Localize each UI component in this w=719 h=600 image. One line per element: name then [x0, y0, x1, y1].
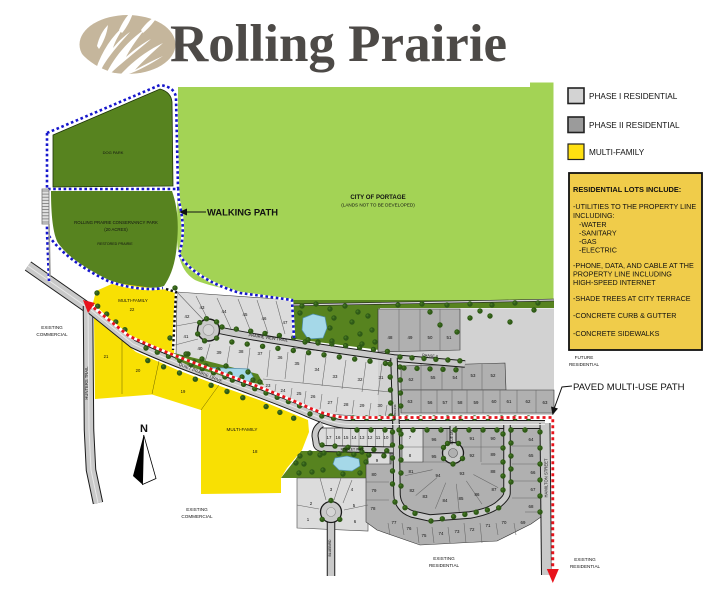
- svg-text:25: 25: [297, 391, 302, 396]
- svg-text:32: 32: [358, 377, 363, 382]
- svg-text:67: 67: [531, 487, 536, 492]
- svg-text:COMMERCIAL: COMMERCIAL: [36, 332, 68, 337]
- svg-text:78: 78: [371, 506, 376, 511]
- svg-text:HAMILTON STREET: HAMILTON STREET: [544, 458, 549, 497]
- svg-text:23: 23: [266, 383, 271, 388]
- svg-text:21: 21: [104, 354, 109, 359]
- svg-text:63: 63: [543, 400, 548, 405]
- svg-text:61: 61: [507, 399, 512, 404]
- svg-text:EXISTING: EXISTING: [186, 507, 208, 512]
- svg-text:49: 49: [408, 335, 413, 340]
- svg-text:43: 43: [200, 305, 205, 310]
- svg-text:41: 41: [184, 334, 189, 339]
- svg-text:66: 66: [531, 470, 536, 475]
- svg-text:62: 62: [526, 399, 531, 404]
- svg-text:ROLLING PRAIRIE CONSERVANCY PA: ROLLING PRAIRIE CONSERVANCY PARK: [74, 220, 158, 225]
- svg-text:88: 88: [491, 469, 496, 474]
- svg-text:59: 59: [474, 400, 479, 405]
- svg-text:65: 65: [529, 453, 534, 458]
- svg-text:EXISTING: EXISTING: [41, 325, 63, 330]
- svg-text:92: 92: [470, 453, 475, 458]
- svg-text:PHASE I RESIDENTIAL: PHASE I RESIDENTIAL: [589, 92, 678, 101]
- svg-text:-CONCRETE SIDEWALKS: -CONCRETE SIDEWALKS: [573, 329, 660, 338]
- svg-text:-CONCRETE CURB & GUTTER: -CONCRETE CURB & GUTTER: [573, 311, 676, 320]
- svg-text:79: 79: [372, 488, 377, 493]
- svg-text:-ELECTRIC: -ELECTRIC: [573, 246, 617, 255]
- svg-text:15: 15: [344, 435, 349, 440]
- svg-text:84: 84: [443, 498, 448, 503]
- svg-text:RESTORED PRAIRIE: RESTORED PRAIRIE: [97, 242, 133, 246]
- svg-text:HIGH-SPEED INTERNET: HIGH-SPEED INTERNET: [573, 278, 656, 287]
- svg-text:51: 51: [447, 335, 452, 340]
- svg-text:(20 ACRES): (20 ACRES): [104, 227, 128, 232]
- svg-text:INCLUDING:: INCLUDING:: [573, 211, 615, 220]
- svg-text:90: 90: [491, 436, 496, 441]
- svg-text:56: 56: [428, 400, 433, 405]
- svg-text:MULTI-FAMILY: MULTI-FAMILY: [227, 427, 258, 432]
- svg-text:WALKING PATH: WALKING PATH: [207, 207, 278, 218]
- svg-text:68: 68: [529, 504, 534, 509]
- svg-text:-UTILITIES TO THE PROPERTY LIN: -UTILITIES TO THE PROPERTY LINE: [573, 202, 696, 211]
- svg-text:72: 72: [470, 527, 475, 532]
- svg-text:11: 11: [376, 435, 381, 440]
- svg-text:(LANDS NOT TO BE DEVELOPED): (LANDS NOT TO BE DEVELOPED): [341, 203, 415, 208]
- svg-text:93: 93: [460, 471, 465, 476]
- svg-text:BOBOLINK: BOBOLINK: [393, 404, 397, 419]
- svg-text:Rolling Prairie: Rolling Prairie: [170, 15, 507, 73]
- svg-text:95: 95: [432, 454, 437, 459]
- svg-text:87: 87: [492, 487, 497, 492]
- svg-text:MULTI-FAMILY: MULTI-FAMILY: [118, 298, 148, 303]
- svg-text:81: 81: [409, 469, 414, 474]
- svg-text:CITY OF PORTAGE: CITY OF PORTAGE: [350, 194, 405, 201]
- svg-text:35: 35: [295, 361, 300, 366]
- svg-text:16: 16: [336, 435, 341, 440]
- svg-text:17: 17: [327, 435, 332, 440]
- svg-text:96: 96: [432, 437, 437, 442]
- svg-text:70: 70: [502, 520, 507, 525]
- svg-text:77: 77: [392, 520, 397, 525]
- svg-text:55: 55: [431, 375, 436, 380]
- svg-text:39: 39: [217, 350, 222, 355]
- svg-text:31: 31: [379, 375, 384, 380]
- svg-text:EXISTING: EXISTING: [433, 556, 455, 561]
- svg-text:45: 45: [243, 312, 248, 317]
- svg-text:DOG PARK: DOG PARK: [103, 150, 124, 155]
- svg-text:48: 48: [388, 335, 393, 340]
- svg-text:58: 58: [458, 400, 463, 405]
- svg-text:36: 36: [278, 355, 283, 360]
- svg-text:62: 62: [409, 377, 414, 382]
- svg-text:RESIDENTIAL LOTS INCLUDE:: RESIDENTIAL LOTS INCLUDE:: [573, 185, 681, 194]
- svg-text:N: N: [140, 423, 148, 435]
- svg-text:PHASE II RESIDENTIAL: PHASE II RESIDENTIAL: [589, 121, 680, 130]
- svg-text:91: 91: [470, 436, 475, 441]
- svg-text:74: 74: [439, 531, 444, 536]
- svg-text:FUTURE: FUTURE: [575, 355, 594, 360]
- svg-text:29: 29: [360, 403, 365, 408]
- svg-text:MULTI-FAMILY: MULTI-FAMILY: [589, 148, 645, 157]
- svg-text:89: 89: [491, 452, 496, 457]
- svg-text:34: 34: [315, 367, 320, 372]
- svg-text:46: 46: [262, 316, 267, 321]
- svg-text:37: 37: [258, 351, 263, 356]
- svg-text:54: 54: [453, 375, 458, 380]
- svg-text:86: 86: [475, 492, 480, 497]
- svg-text:22: 22: [130, 307, 135, 312]
- svg-text:KINGLET WAY: KINGLET WAY: [341, 448, 364, 452]
- svg-text:14: 14: [352, 435, 357, 440]
- svg-text:30: 30: [378, 403, 383, 408]
- svg-text:71: 71: [486, 523, 491, 528]
- svg-text:85: 85: [459, 496, 464, 501]
- svg-text:RESIDENTIAL: RESIDENTIAL: [570, 564, 601, 569]
- svg-text:BLUE JAY: BLUE JAY: [450, 429, 454, 445]
- svg-text:60: 60: [492, 399, 497, 404]
- svg-text:RESIDENTIAL: RESIDENTIAL: [429, 563, 460, 568]
- svg-text:57: 57: [443, 400, 448, 405]
- svg-text:COMMERCIAL: COMMERCIAL: [181, 514, 213, 519]
- svg-text:12: 12: [368, 435, 373, 440]
- svg-text:13: 13: [360, 435, 365, 440]
- svg-text:24: 24: [281, 388, 286, 393]
- svg-text:40: 40: [198, 346, 203, 351]
- svg-text:42: 42: [185, 314, 190, 319]
- svg-text:73: 73: [455, 529, 460, 534]
- svg-text:52: 52: [491, 373, 496, 378]
- svg-text:RESIDENTIAL: RESIDENTIAL: [569, 362, 600, 367]
- svg-text:28: 28: [344, 402, 349, 407]
- svg-text:38: 38: [239, 349, 244, 354]
- svg-text:EXISTING: EXISTING: [574, 557, 596, 562]
- svg-text:64: 64: [529, 437, 534, 442]
- svg-text:47: 47: [283, 320, 288, 325]
- svg-text:50: 50: [428, 335, 433, 340]
- svg-text:10: 10: [384, 435, 389, 440]
- svg-text:75: 75: [422, 533, 427, 538]
- svg-text:94: 94: [436, 473, 441, 478]
- svg-text:82: 82: [410, 488, 415, 493]
- svg-text:BLUEBIRD: BLUEBIRD: [328, 539, 332, 557]
- svg-text:20: 20: [136, 368, 141, 373]
- svg-text:33: 33: [333, 374, 338, 379]
- svg-text:63: 63: [408, 399, 413, 404]
- svg-text:69: 69: [521, 520, 526, 525]
- svg-text:76: 76: [407, 526, 412, 531]
- svg-text:83: 83: [423, 494, 428, 499]
- svg-text:44: 44: [222, 309, 227, 314]
- svg-text:PAVED MULTI-USE PATH: PAVED MULTI-USE PATH: [573, 382, 685, 393]
- svg-text:53: 53: [471, 373, 476, 378]
- svg-text:HUNTERS TRAIL: HUNTERS TRAIL: [84, 366, 89, 400]
- svg-text:18: 18: [253, 449, 258, 454]
- svg-text:26: 26: [311, 394, 316, 399]
- svg-text:19: 19: [181, 389, 186, 394]
- svg-text:27: 27: [328, 400, 333, 405]
- svg-text:80: 80: [372, 472, 377, 477]
- svg-text:-SHADE TREES AT CITY TERRACE: -SHADE TREES AT CITY TERRACE: [573, 294, 691, 303]
